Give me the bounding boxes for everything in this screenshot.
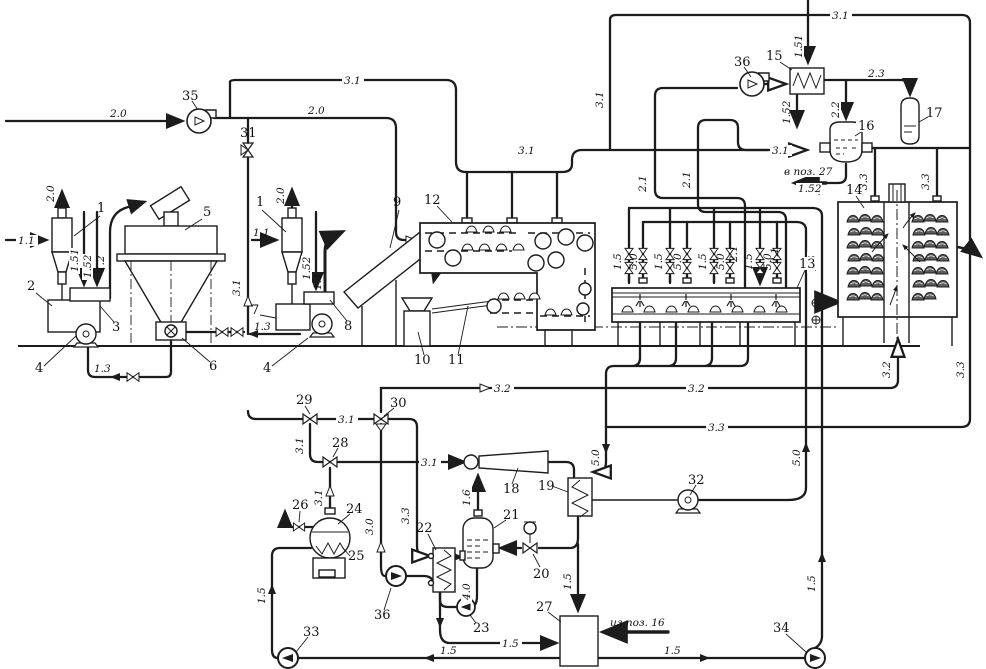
svg-text:5.0: 5.0 <box>762 253 774 270</box>
svg-text:36: 36 <box>374 608 391 623</box>
svg-text:23: 23 <box>473 621 490 636</box>
stream-label: 2.3 <box>866 68 888 80</box>
flow-arrow-3-1-up <box>326 486 334 496</box>
stream-label: 1.5 <box>806 572 818 594</box>
stream-label: 3.1 <box>336 414 358 426</box>
stream-label: 2.0 <box>108 108 130 120</box>
svg-text:3.3: 3.3 <box>400 507 412 524</box>
svg-text:24: 24 <box>346 502 363 517</box>
svg-text:из поз. 16: из поз. 16 <box>610 617 665 629</box>
svg-text:3.1: 3.1 <box>313 489 325 506</box>
bin-7 <box>276 304 310 330</box>
stream-label: 1.5 <box>662 645 684 657</box>
chamber-14 <box>838 184 957 346</box>
svg-text:28: 28 <box>332 436 349 451</box>
svg-text:1.3: 1.3 <box>254 321 271 333</box>
svg-text:1.52: 1.52 <box>82 254 94 278</box>
equipment-label-26: 26 <box>292 498 309 513</box>
equipment-label-35: 35 <box>182 89 199 104</box>
pump-4a <box>74 324 98 347</box>
equipment-label-25: 25 <box>348 549 365 564</box>
stream-label: 1.4 <box>312 273 324 290</box>
equipment-label-29: 29 <box>296 393 313 408</box>
pipe-2-0-header <box>230 118 412 240</box>
tank-17 <box>901 98 919 144</box>
equipment-label-11: 11 <box>448 353 465 368</box>
equipment-label-19: 19 <box>538 479 555 494</box>
stream-label: 3.1 <box>313 486 325 508</box>
equipment-label-8: 8 <box>344 319 352 334</box>
stream-label: 3.3 <box>400 504 412 526</box>
tank-27 <box>560 616 598 666</box>
svg-text:2.0: 2.0 <box>275 187 287 205</box>
valve-1-3-icon <box>127 373 139 382</box>
pipe-3-0 <box>381 424 433 583</box>
svg-text:1.51: 1.51 <box>69 249 81 272</box>
pipe-12-risers <box>467 172 557 219</box>
vessel-21 <box>460 510 499 568</box>
loaf-icon <box>514 293 525 299</box>
burner-pipes <box>625 208 781 283</box>
valve-28 <box>323 457 337 467</box>
svg-text:21: 21 <box>503 508 520 523</box>
exchanger-19 <box>568 478 592 517</box>
svg-text:3.0: 3.0 <box>364 518 376 535</box>
stream-label: 1.52 <box>781 100 793 124</box>
svg-text:31: 31 <box>240 126 257 141</box>
stream-label: 1.5 <box>562 570 574 592</box>
flow-arrow-1-5-left <box>424 654 434 662</box>
note-to-pos-27: в поз. 27 <box>782 166 838 178</box>
svg-text:3.1: 3.1 <box>421 457 438 469</box>
stream-label: 3.1 <box>516 145 538 157</box>
equipment-label-16: 16 <box>856 119 876 134</box>
equipment-label-31: 31 <box>240 126 257 141</box>
pump-36b <box>386 566 406 586</box>
stream-label: 1.3 <box>254 321 271 333</box>
svg-text:34: 34 <box>773 621 790 636</box>
machine-12 <box>420 223 595 346</box>
svg-text:15: 15 <box>766 49 783 64</box>
svg-text:5: 5 <box>203 205 211 220</box>
equipment-label-12: 12 <box>424 193 441 208</box>
stream-label: 1.5 <box>612 253 624 270</box>
svg-text:3.3: 3.3 <box>920 173 932 190</box>
pump-33 <box>278 648 298 668</box>
svg-text:2.1: 2.1 <box>728 245 740 263</box>
svg-text:1.5: 1.5 <box>653 253 665 270</box>
blower-35 <box>187 109 216 133</box>
equipment-label-1b: 1 <box>256 195 264 210</box>
svg-text:1.1: 1.1 <box>253 227 270 239</box>
svg-text:1.5: 1.5 <box>743 253 755 270</box>
stream-label: 1.5 <box>653 253 665 270</box>
svg-text:1.5: 1.5 <box>612 253 624 270</box>
equipment-label-36b: 36 <box>374 608 391 623</box>
svg-text:2.3: 2.3 <box>867 68 885 80</box>
oven-13 <box>612 288 820 346</box>
equipment-label-14: 14 <box>846 183 863 198</box>
svg-text:30: 30 <box>390 396 407 411</box>
svg-text:32: 32 <box>688 473 705 488</box>
stream-label: 1.5 <box>697 253 709 270</box>
stream-label: 5.0 <box>762 253 774 270</box>
svg-text:1.1: 1.1 <box>18 235 35 247</box>
exchanger-22 <box>429 548 456 592</box>
pipe-5-0-exhaust <box>594 322 748 472</box>
equipment-label-27: 27 <box>536 600 553 615</box>
conveyor-11 <box>432 301 492 313</box>
stream-label: 1.5 <box>500 638 522 650</box>
equipment-label-23: 23 <box>473 621 490 636</box>
stream-label: 3.1 <box>419 457 441 469</box>
valve-29 <box>303 414 317 424</box>
stream-label: 1.5 <box>438 645 460 657</box>
svg-text:22: 22 <box>416 521 433 536</box>
valve-icon <box>231 328 243 337</box>
equipment-label-32: 32 <box>688 473 705 488</box>
svg-text:33: 33 <box>303 625 320 640</box>
svg-text:3.2: 3.2 <box>494 383 511 395</box>
stream-label: 2.0 <box>45 185 57 203</box>
svg-text:16: 16 <box>858 119 875 134</box>
svg-text:6: 6 <box>209 359 217 374</box>
stream-label: 3.1 <box>830 10 852 22</box>
equipment-label-13: 13 <box>797 257 817 272</box>
valve-icon <box>639 262 647 273</box>
svg-text:35: 35 <box>182 89 199 104</box>
equipment-label-7: 7 <box>251 303 259 318</box>
svg-text:1.3: 1.3 <box>94 363 111 375</box>
equipment-label-3: 3 <box>112 320 120 335</box>
stream-label: 1.51 <box>69 248 81 274</box>
stream-label: 1.1 <box>16 235 38 247</box>
svg-text:3.1: 3.1 <box>594 91 606 108</box>
valve-icon <box>216 328 228 337</box>
pump-4b <box>310 314 334 337</box>
stream-label: 1.2 <box>95 255 107 272</box>
stream-label: 1.51 <box>793 34 805 60</box>
svg-text:4: 4 <box>263 361 271 376</box>
equipment-group <box>48 68 957 668</box>
svg-text:11: 11 <box>448 353 465 368</box>
svg-text:36: 36 <box>734 55 751 70</box>
pump-32 <box>676 490 700 513</box>
stream-label: 3.1 <box>231 276 243 298</box>
equipment-label-21: 21 <box>503 508 520 523</box>
svg-text:20: 20 <box>533 567 550 582</box>
stream-label: 3.1 <box>294 434 306 456</box>
stream-label: 5.0 <box>628 253 640 270</box>
stream-label: 3.1 <box>594 88 606 110</box>
equipment-label-6: 6 <box>209 359 217 374</box>
svg-text:1.5: 1.5 <box>562 573 574 590</box>
svg-text:1.6: 1.6 <box>461 489 473 506</box>
equipment-label-10: 10 <box>414 353 431 368</box>
svg-text:2.0: 2.0 <box>307 105 325 117</box>
svg-text:1: 1 <box>97 201 105 216</box>
ejector-18 <box>464 451 548 473</box>
stream-label: 2.1 <box>681 168 693 190</box>
stream-label: 3.3 <box>920 173 932 190</box>
valve-icon <box>639 248 647 259</box>
flow-arrow-5-0-up <box>802 442 810 452</box>
stream-label: 1.5 <box>256 584 268 606</box>
flow-arrow-3-0-up <box>377 542 385 552</box>
valve-30-branch <box>376 424 386 431</box>
cyclone-1b <box>282 208 302 304</box>
equipment-label-17: 17 <box>926 106 943 121</box>
svg-text:29: 29 <box>296 393 313 408</box>
svg-text:3.1: 3.1 <box>518 145 535 157</box>
svg-text:3.1: 3.1 <box>338 414 355 426</box>
flow-arrow-1-5-right <box>700 654 710 662</box>
equipment-label-2: 2 <box>27 279 35 294</box>
svg-text:2.1: 2.1 <box>681 171 693 189</box>
svg-text:5.0: 5.0 <box>628 253 640 270</box>
svg-text:1.2: 1.2 <box>95 255 107 272</box>
svg-text:1.5: 1.5 <box>697 253 709 270</box>
stream-label: 3.2 <box>881 358 893 380</box>
svg-text:3.1: 3.1 <box>832 10 849 22</box>
svg-text:2.1: 2.1 <box>637 175 649 193</box>
equipment-label-33: 33 <box>303 625 320 640</box>
process-flow-diagram: 1.1 2.0 1.51 1.52 1.2 1.3 3.1 1.1 2.0 1.… <box>0 0 986 669</box>
svg-text:14: 14 <box>846 183 863 198</box>
equipment-label-22: 22 <box>416 521 433 536</box>
stream-label: 2.0 <box>275 187 287 205</box>
stream-label: 1.6 <box>461 486 473 508</box>
stream-label: 5.0 <box>715 253 727 270</box>
equipment-label-20: 20 <box>533 567 550 582</box>
pipe-1-4 <box>325 232 342 292</box>
svg-text:7: 7 <box>251 303 259 318</box>
svg-text:5.0: 5.0 <box>715 253 727 270</box>
equipment-label-36a: 36 <box>734 55 751 70</box>
svg-text:17: 17 <box>926 106 943 121</box>
flow-arrow-down <box>436 618 444 628</box>
svg-text:3.2: 3.2 <box>881 361 893 378</box>
stream-label: 3.2 <box>492 383 514 395</box>
stream-label: 5.0 <box>791 449 803 466</box>
stream-label: 2.1 <box>728 245 740 263</box>
svg-text:3.1: 3.1 <box>344 75 361 87</box>
valve-30 <box>374 414 388 424</box>
stream-label: 1.5 <box>743 253 755 270</box>
svg-text:4: 4 <box>35 361 43 376</box>
svg-text:9: 9 <box>393 195 401 210</box>
equipment-label-28: 28 <box>332 436 349 451</box>
svg-text:3: 3 <box>112 320 120 335</box>
svg-text:3.2: 3.2 <box>688 383 705 395</box>
note-from-pos-16: из поз. 16 <box>610 617 665 629</box>
svg-text:1.5: 1.5 <box>664 645 681 657</box>
equipment-label-30: 30 <box>390 396 407 411</box>
svg-text:2.2: 2.2 <box>830 101 842 119</box>
stream-label: 2.2 <box>830 98 842 120</box>
control-valve-20 <box>523 522 537 553</box>
svg-text:3.3: 3.3 <box>708 422 725 434</box>
pipe-3-1-left-header <box>214 80 806 172</box>
equipment-label-15: 15 <box>766 49 783 64</box>
annotations: в поз. 27 из поз. 16 <box>610 166 838 629</box>
equipment-label-9: 9 <box>393 195 401 210</box>
stream-label: 3.3 <box>955 358 967 380</box>
svg-text:13: 13 <box>799 257 816 272</box>
flow-arrow-3-2 <box>480 384 490 392</box>
svg-text:3.3: 3.3 <box>955 361 967 378</box>
feeder-3 <box>70 288 110 301</box>
valve-icon <box>683 248 691 259</box>
svg-text:1.52: 1.52 <box>781 100 793 124</box>
pipe-2-3 <box>824 80 910 94</box>
equipment-label-1a: 1 <box>97 201 105 216</box>
svg-text:4.0: 4.0 <box>461 583 473 601</box>
svg-text:3.1: 3.1 <box>772 145 789 157</box>
flow-arrow-up <box>268 584 276 594</box>
flow-arrow-5-0-down <box>602 444 610 454</box>
stream-label: 3.1 <box>342 75 364 87</box>
blower-36a <box>740 72 769 96</box>
svg-text:5.0: 5.0 <box>590 449 602 466</box>
pipe-ejector-out <box>548 462 574 477</box>
svg-text:2: 2 <box>27 279 35 294</box>
stream-label: 1.52 <box>82 254 94 280</box>
svg-text:5.0: 5.0 <box>672 253 684 270</box>
svg-text:26: 26 <box>292 498 309 513</box>
stream-label: 5.0 <box>672 253 684 270</box>
equipment-label-24: 24 <box>346 502 363 517</box>
feeder-8 <box>304 292 334 304</box>
valve-icon <box>726 262 734 273</box>
svg-text:10: 10 <box>414 353 431 368</box>
stream-label: 2.1 <box>637 172 649 194</box>
svg-text:19: 19 <box>538 479 555 494</box>
equipment-label-18: 18 <box>503 482 520 497</box>
svg-text:1: 1 <box>256 195 264 210</box>
diagram-canvas: 1.1 2.0 1.51 1.52 1.2 1.3 3.1 1.1 2.0 1.… <box>0 0 986 669</box>
svg-text:12: 12 <box>424 193 441 208</box>
equipment-label-4b: 4 <box>263 361 271 376</box>
svg-text:1.5: 1.5 <box>440 645 457 657</box>
flow-arrow-1-3 <box>110 373 120 381</box>
equipment-label-5: 5 <box>203 205 211 220</box>
stream-label: 1.1 <box>253 227 270 239</box>
svg-text:5.0: 5.0 <box>791 449 803 466</box>
stream-label: 3.0 <box>364 515 376 537</box>
valve-icon <box>683 262 691 273</box>
flow-arrow-1-5-up <box>818 552 826 562</box>
stream-label: 3.3 <box>706 422 728 434</box>
stream-label: 3.2 <box>686 383 708 395</box>
svg-text:в поз. 27: в поз. 27 <box>784 166 833 178</box>
pump-34 <box>805 648 825 668</box>
hopper-10 <box>402 298 432 346</box>
svg-text:1.4: 1.4 <box>312 273 324 290</box>
svg-text:1.5: 1.5 <box>256 587 268 604</box>
stream-label: 4.0 <box>461 580 473 602</box>
stream-label: 5.0 <box>590 449 602 466</box>
svg-text:8: 8 <box>344 319 352 334</box>
svg-text:1.5: 1.5 <box>806 575 818 592</box>
stream-label: 2.0 <box>306 105 328 117</box>
svg-text:27: 27 <box>536 600 553 615</box>
pipe-1-5-to-24 <box>272 548 311 658</box>
loaf-icon <box>498 293 509 299</box>
equipment-label-34: 34 <box>773 621 790 636</box>
stream-label: 1.52 <box>796 183 822 195</box>
stream-label: 3.1 <box>770 145 792 157</box>
svg-text:1.51: 1.51 <box>793 35 805 58</box>
svg-text:2.0: 2.0 <box>109 108 127 120</box>
stream-label: 1.3 <box>92 363 114 375</box>
valve-26 <box>293 523 304 531</box>
svg-text:2.0: 2.0 <box>45 185 57 203</box>
svg-text:3.1: 3.1 <box>294 437 306 454</box>
equipment-label-4a: 4 <box>35 361 43 376</box>
svg-text:18: 18 <box>503 482 520 497</box>
svg-text:25: 25 <box>348 549 365 564</box>
svg-text:1.52: 1.52 <box>798 183 822 195</box>
svg-text:1.5: 1.5 <box>502 638 519 650</box>
svg-text:3.1: 3.1 <box>231 279 243 296</box>
